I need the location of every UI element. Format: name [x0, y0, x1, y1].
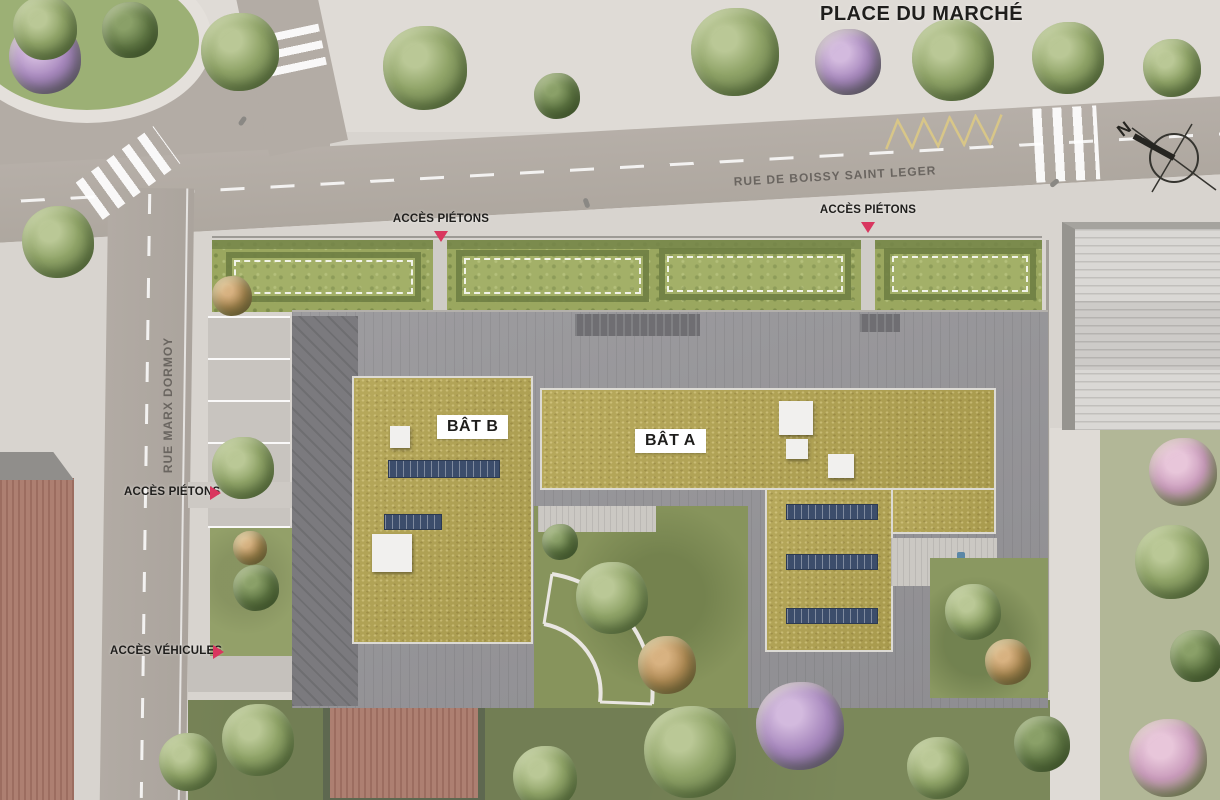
rooftop-unit — [828, 454, 854, 478]
street-name-marx-dormoy: RUE MARX DORMOY — [161, 337, 175, 473]
neighbor-building-red-roof — [0, 478, 74, 800]
solar-panels — [786, 608, 878, 624]
garden-plot — [659, 248, 851, 300]
shrub — [212, 276, 252, 316]
access-marker-right-icon — [213, 645, 224, 659]
building-label-bat-a: BÂT A — [635, 429, 706, 453]
solar-panels — [388, 460, 500, 478]
site-fence — [212, 236, 1042, 238]
solar-panels — [384, 514, 442, 530]
tree — [13, 0, 77, 60]
shrub — [233, 531, 267, 565]
tree — [383, 26, 467, 110]
tree — [201, 13, 279, 91]
compass-north-label: N — [1113, 118, 1134, 141]
rooftop-unit — [372, 534, 412, 572]
solar-panels — [786, 554, 878, 570]
garden-access-path — [433, 240, 447, 312]
access-marker-down-icon — [434, 231, 448, 242]
access-pedestrian-label-2: ACCÈS PIÉTONS — [820, 204, 916, 216]
tree — [212, 437, 274, 499]
tree — [756, 682, 844, 770]
tree — [945, 584, 1001, 640]
private-gardens — [212, 240, 1042, 312]
neighbor-building-market — [1062, 222, 1220, 430]
tree — [102, 2, 158, 58]
roof-shading — [1075, 301, 1220, 369]
tree — [1149, 438, 1217, 506]
bat-a-green-roof-arm — [891, 488, 996, 534]
entrance-paving — [860, 314, 900, 332]
access-pedestrian-label-1: ACCÈS PIÉTONS — [393, 213, 489, 225]
garden-plot — [884, 248, 1036, 300]
tree — [159, 733, 217, 791]
tree — [22, 206, 94, 278]
garden-access-path — [861, 240, 875, 312]
access-vehicle-label: ACCÈS VÉHICULES — [110, 645, 222, 657]
tree — [1032, 22, 1104, 94]
access-marker-right-icon — [210, 486, 221, 500]
rooftop-unit — [786, 439, 808, 459]
solar-panels — [786, 504, 878, 520]
tree — [985, 639, 1031, 685]
compass: N — [1108, 108, 1220, 212]
tree — [1170, 630, 1220, 682]
tree — [638, 636, 696, 694]
tree — [644, 706, 736, 798]
tree — [1129, 719, 1207, 797]
shrub — [542, 524, 578, 560]
garden-plot — [456, 250, 649, 302]
rooftop-unit — [779, 401, 813, 435]
tree — [815, 29, 881, 95]
tree — [513, 746, 577, 800]
neighbor-building-red-roof — [328, 706, 480, 800]
bat-a-green-roof — [540, 388, 996, 490]
building-label-bat-b: BÂT B — [437, 415, 508, 439]
rooftop-unit — [390, 426, 410, 448]
site-plan: PLACE DU MARCHÉ RUE DE BOISSY SAINT LEGE… — [0, 0, 1220, 800]
tree — [1135, 525, 1209, 599]
tree — [222, 704, 294, 776]
tree — [233, 565, 279, 611]
entrance-paving — [575, 314, 700, 336]
crosswalk — [1032, 105, 1100, 182]
west-wing-roof — [292, 316, 358, 706]
tree — [1143, 39, 1201, 97]
plaza-title: PLACE DU MARCHÉ — [820, 3, 1023, 26]
compass-needle — [1134, 136, 1174, 158]
access-marker-down-icon — [861, 222, 875, 233]
tree — [691, 8, 779, 96]
roof-edge — [0, 452, 74, 480]
access-pedestrian-label-3: ACCÈS PIÉTONS — [124, 486, 220, 498]
garden-plot — [226, 252, 421, 302]
tree — [1014, 716, 1070, 772]
tree — [907, 737, 969, 799]
tree — [912, 19, 994, 101]
tree — [576, 562, 648, 634]
tree — [534, 73, 580, 119]
